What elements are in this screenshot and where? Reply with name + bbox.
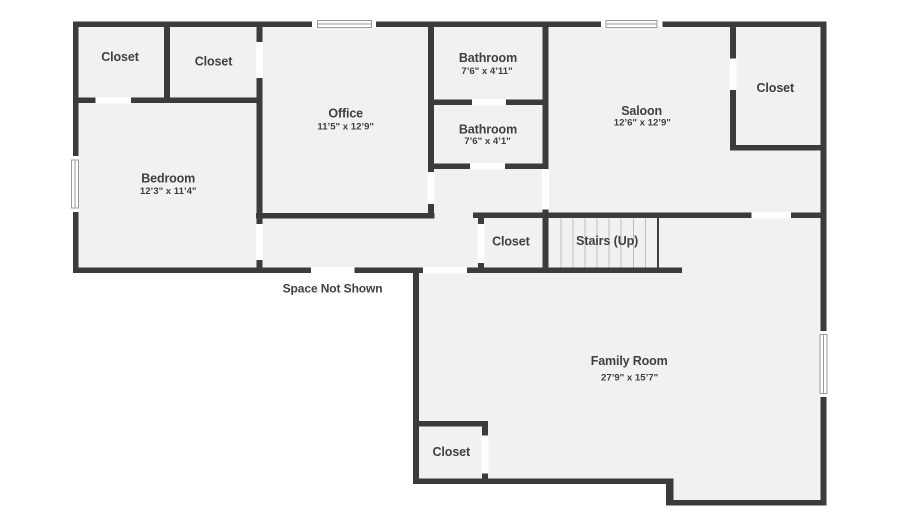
svg-text:12’6" x 12’9": 12’6" x 12’9" — [614, 118, 671, 129]
svg-text:Bedroom: Bedroom — [141, 172, 195, 186]
svg-text:Family Room: Family Room — [591, 354, 668, 368]
svg-text:27’9" x 15’7": 27’9" x 15’7" — [601, 372, 658, 383]
svg-text:Closet: Closet — [756, 81, 795, 95]
svg-text:Stairs (Up): Stairs (Up) — [576, 234, 638, 248]
svg-text:Space Not Shown: Space Not Shown — [283, 282, 383, 296]
svg-text:Office: Office — [328, 107, 363, 121]
svg-text:Closet: Closet — [195, 55, 234, 69]
svg-text:Closet: Closet — [432, 445, 471, 459]
svg-text:7’6" x 4’11": 7’6" x 4’11" — [461, 66, 512, 77]
svg-text:11’5" x 12’9": 11’5" x 12’9" — [317, 122, 374, 133]
svg-text:12’3" x 11’4": 12’3" x 11’4" — [140, 186, 197, 197]
svg-text:Saloon: Saloon — [621, 104, 662, 118]
svg-text:Closet: Closet — [101, 50, 140, 64]
svg-text:Bathroom: Bathroom — [459, 51, 517, 65]
svg-text:Closet: Closet — [492, 235, 531, 249]
svg-text:Bathroom: Bathroom — [459, 122, 517, 136]
svg-text:7’6" x 4’1": 7’6" x 4’1" — [464, 136, 510, 147]
